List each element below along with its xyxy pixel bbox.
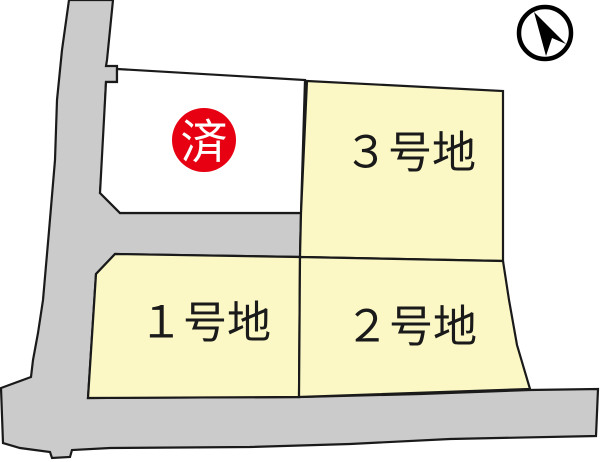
sold-badge: 済 <box>172 108 236 172</box>
lot-1-label: １号地 <box>139 299 271 348</box>
lot-2-label: ２号地 <box>345 303 477 352</box>
plot-map-canvas: ３号地 １号地 ２号地 済 <box>0 0 600 462</box>
land-plot-map: ３号地 １号地 ２号地 済 <box>0 0 600 462</box>
sold-badge-label: 済 <box>181 116 228 169</box>
north-arrow-icon <box>519 7 571 59</box>
lot-3-label: ３号地 <box>344 129 476 178</box>
